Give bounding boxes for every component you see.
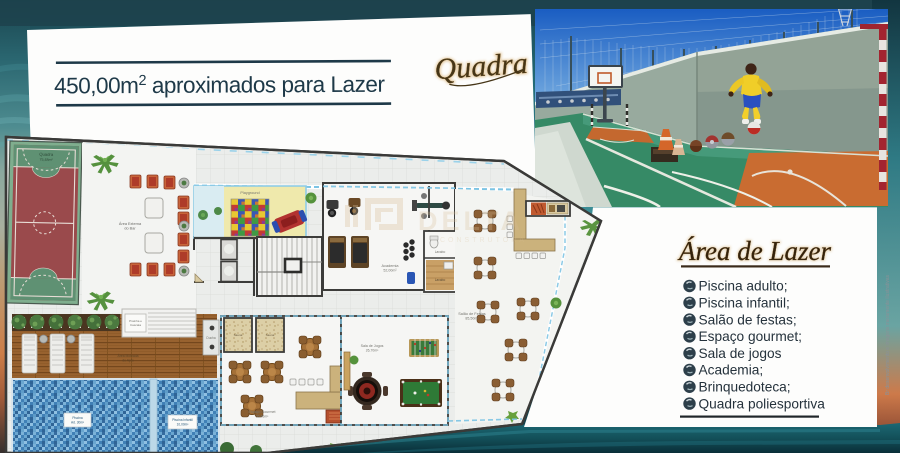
svg-text:Área de Lazer: Área de Lazer xyxy=(677,236,831,266)
svg-text:Ducha: Ducha xyxy=(206,336,215,340)
svg-text:Sala de jogos: Sala de jogos xyxy=(699,346,782,361)
svg-text:Academia: Academia xyxy=(382,264,400,268)
svg-text:26,70m²: 26,70m² xyxy=(366,349,379,353)
svg-text:Sala de Jogos: Sala de Jogos xyxy=(361,344,384,348)
svg-text:75,48m²: 75,48m² xyxy=(39,158,53,162)
svg-text:Sauna: Sauna xyxy=(234,333,243,337)
svg-text:Salão de Festas: Salão de Festas xyxy=(458,312,486,316)
svg-text:Espaço Gourmet: Espaço Gourmet xyxy=(249,410,276,414)
svg-text:Piscina infantil;: Piscina infantil; xyxy=(699,296,790,311)
svg-text:Quadra: Quadra xyxy=(433,47,528,86)
svg-text:Área Externa: Área Externa xyxy=(119,222,142,226)
svg-text:Piscina: Piscina xyxy=(72,416,83,420)
svg-text:do Apto: do Apto xyxy=(122,359,134,363)
svg-text:Academia;: Academia; xyxy=(699,363,764,378)
svg-text:450,00m2 aproximados para Laze: 450,00m2 aproximados para Lazer xyxy=(54,72,386,99)
svg-text:Sauna: Sauna xyxy=(266,333,275,337)
svg-text:Playground: Playground xyxy=(240,191,259,195)
svg-text:Quadra: Quadra xyxy=(39,152,54,157)
svg-text:Quadra poliesportiva: Quadra poliesportiva xyxy=(699,396,826,411)
svg-text:Área Molhada: Área Molhada xyxy=(117,354,138,358)
svg-text:85,50m²: 85,50m² xyxy=(465,317,479,321)
svg-text:10,00m²: 10,00m² xyxy=(177,423,189,427)
svg-text:52,00m²: 52,00m² xyxy=(383,269,397,273)
svg-text:Cascata: Cascata xyxy=(130,323,141,327)
svg-text:DELTA: DELTA xyxy=(418,206,524,236)
svg-text:Ad. 30m²: Ad. 30m² xyxy=(71,421,84,425)
svg-text:Piscina Infantil: Piscina Infantil xyxy=(172,418,193,422)
svg-text:Brinquedoteca;: Brinquedoteca; xyxy=(699,380,791,395)
svg-text:CONSTRUTORA: CONSTRUTORA xyxy=(440,237,527,244)
svg-text:Br desenvolvimento e imagens m: Br desenvolvimento e imagens meramente i… xyxy=(885,274,891,395)
svg-text:Salão de festas;: Salão de festas; xyxy=(699,312,797,327)
svg-text:Lavabo: Lavabo xyxy=(435,278,446,282)
svg-text:Piscina adulto;: Piscina adulto; xyxy=(699,279,788,294)
svg-text:35,45m²: 35,45m² xyxy=(256,415,269,419)
svg-text:Lavabo: Lavabo xyxy=(435,250,446,254)
svg-text:do Bar: do Bar xyxy=(124,227,136,231)
svg-text:Espaço gourmet;: Espaço gourmet; xyxy=(699,329,802,344)
